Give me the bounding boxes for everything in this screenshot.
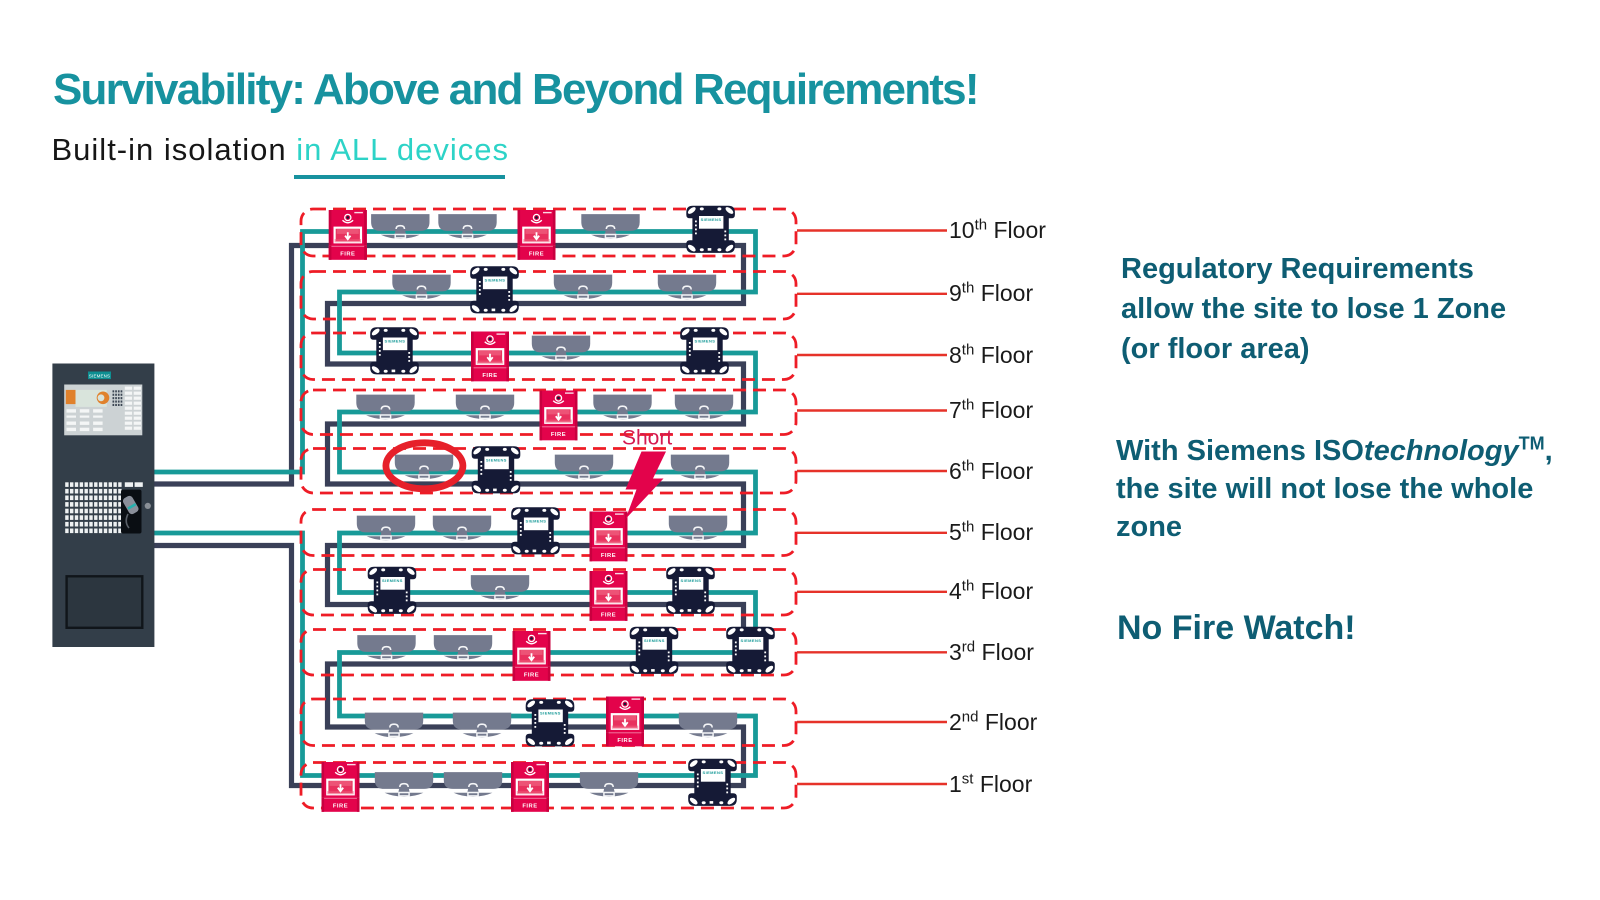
svg-text:Short: Short	[622, 427, 672, 450]
svg-text:SIEMENS: SIEMENS	[89, 374, 110, 379]
